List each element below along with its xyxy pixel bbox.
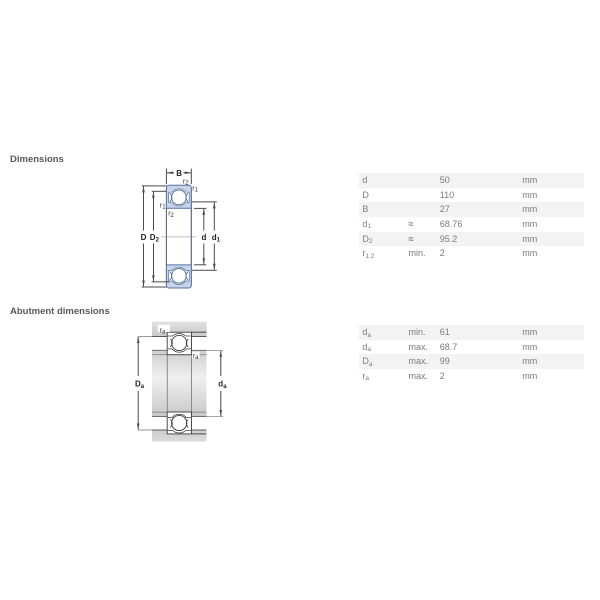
svg-text:Da: Da — [135, 379, 145, 390]
svg-text:B: B — [176, 169, 182, 178]
svg-text:r1: r1 — [192, 185, 198, 193]
svg-text:r1: r1 — [160, 202, 166, 210]
svg-text:da: da — [218, 379, 227, 390]
svg-text:d: d — [202, 233, 207, 242]
svg-text:d1: d1 — [212, 233, 221, 244]
svg-text:D: D — [141, 233, 147, 242]
svg-text:D2: D2 — [150, 233, 160, 244]
